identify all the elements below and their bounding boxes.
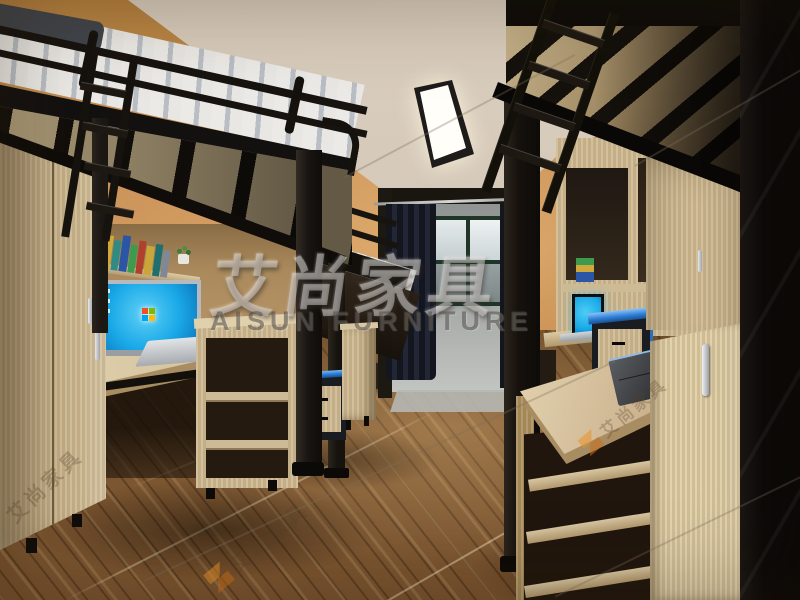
small-book-stack [576, 258, 594, 282]
shelf-cube-board [206, 440, 288, 450]
ladder-right-rung [498, 144, 561, 173]
loft-bed-front-post-foot [292, 462, 324, 476]
wardrobe-right-door [650, 322, 748, 600]
window-pane-top-right [470, 220, 502, 260]
wardrobe-left-handle [95, 330, 100, 360]
wardrobe-right-door-handle [702, 344, 709, 396]
dorm-room-render: 艾尚家具 AISUN FURNITURE 艾尚家具 艾尚家具 艾尚家具 [0, 0, 800, 600]
wardrobe-left-foot [72, 514, 82, 527]
wardrobe-left-foot [26, 538, 37, 553]
threshold-grey-spill [390, 390, 512, 412]
ceiling-light [392, 76, 484, 172]
open-shelf-cube [196, 320, 298, 488]
ladder-right-rung [527, 61, 590, 90]
ladder-right-rung [513, 102, 576, 131]
loft-bed-back-post-foot [324, 468, 349, 478]
wardrobe-door-seam [52, 122, 54, 550]
windows-logo [142, 308, 155, 321]
ladder-right-rail [542, 12, 620, 214]
cabinet-drawer-handle [612, 342, 625, 345]
black-side-panel [740, 0, 800, 600]
loft-bed-front-post-right [296, 150, 322, 470]
shelf-cube-foot [206, 488, 215, 499]
ladder-right-rung [541, 19, 604, 48]
shelf-cube-board [206, 392, 288, 402]
shelf-cube-interior [206, 338, 288, 478]
wood-cabinet-leg [346, 420, 351, 430]
window-pane-bottom-right [470, 264, 502, 302]
plant-leaves [174, 244, 192, 256]
wardrobe-left [0, 122, 106, 550]
balcony-window [430, 216, 506, 306]
window-pane-bottom-left [434, 264, 466, 302]
wood-cabinet-leg [364, 416, 369, 426]
wardrobe-right-upper-handle [698, 250, 702, 272]
wood-cabinet-mid [342, 326, 376, 420]
window-pane-top-left [434, 220, 466, 260]
shelf-cube-foot [268, 480, 277, 491]
